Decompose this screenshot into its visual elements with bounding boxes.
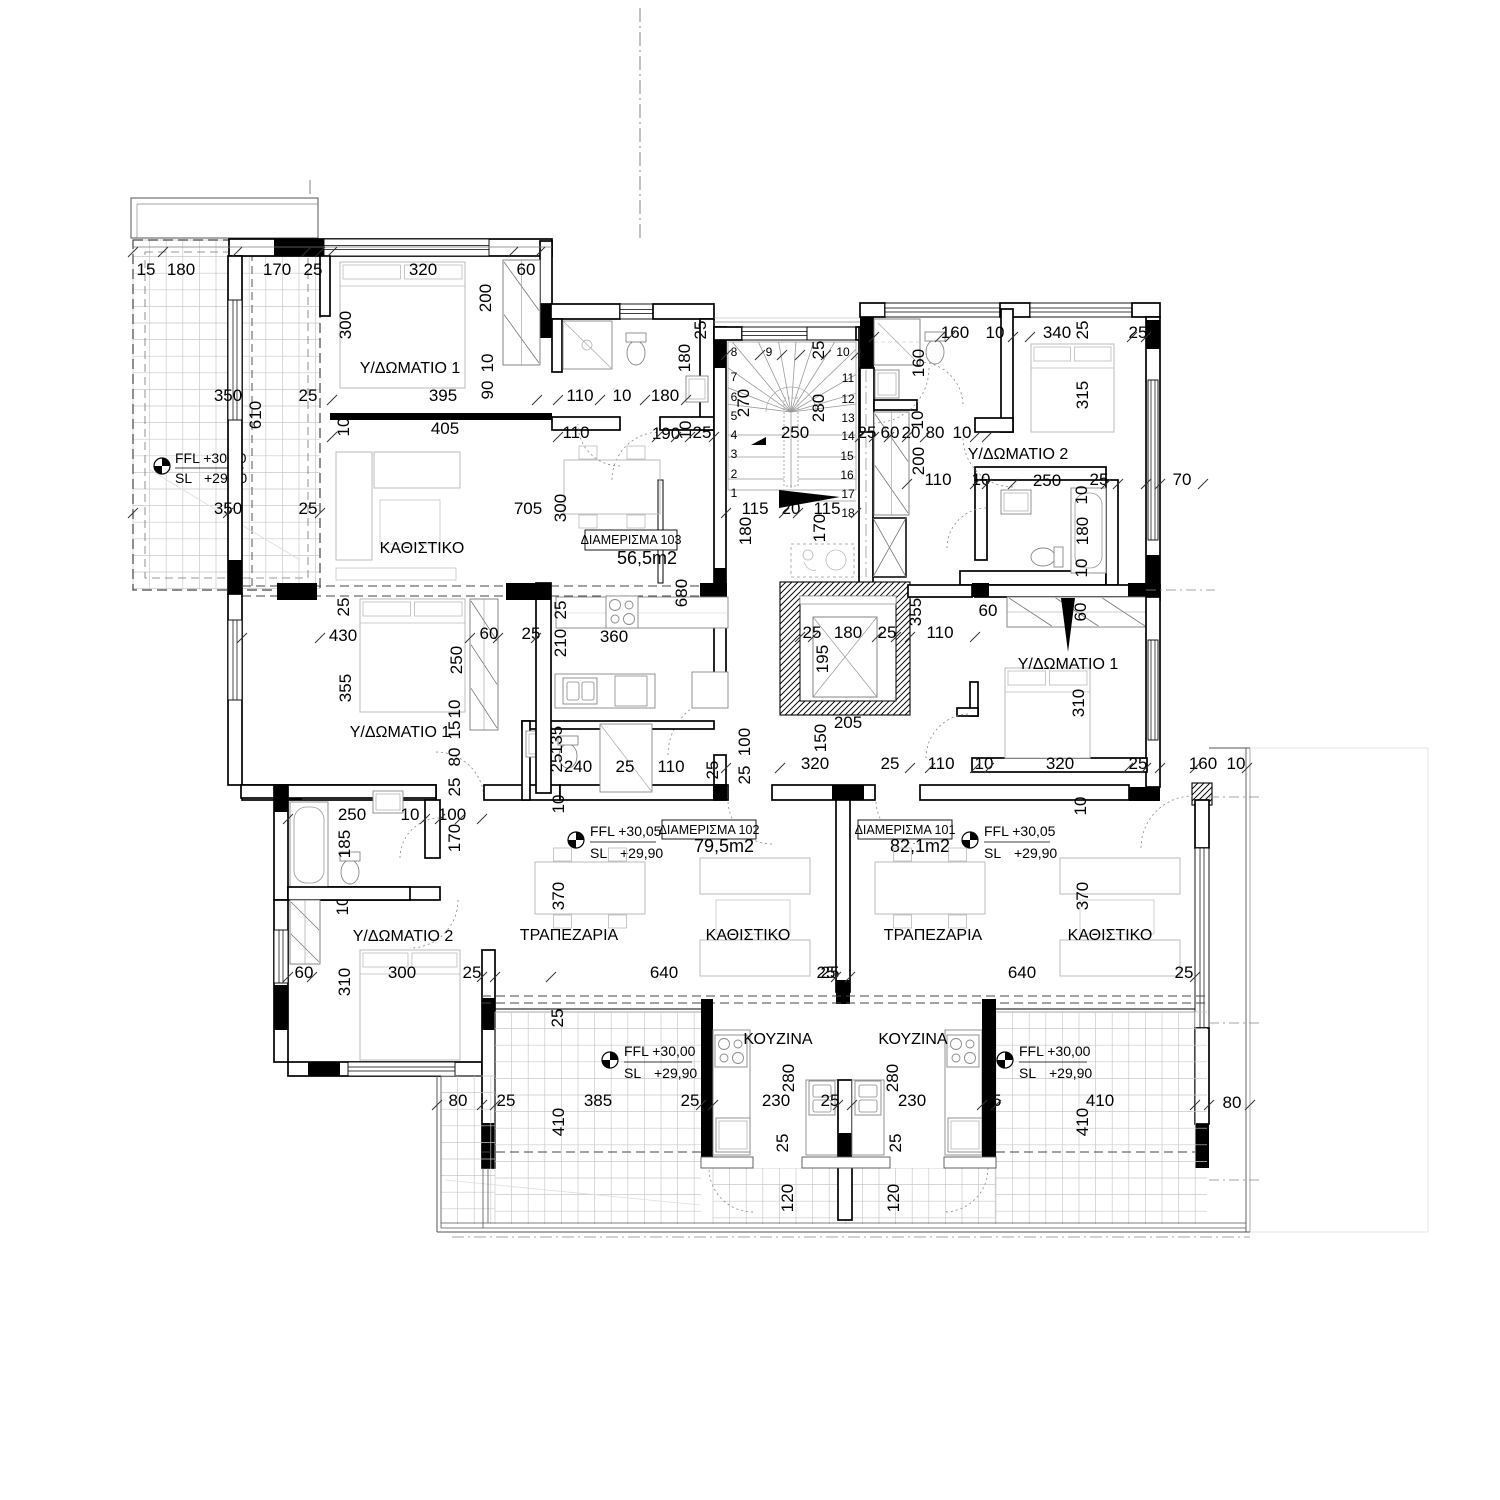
svg-text:100: 100 xyxy=(438,805,466,824)
svg-text:25: 25 xyxy=(681,1091,700,1110)
svg-text:110: 110 xyxy=(926,623,953,642)
svg-text:150: 150 xyxy=(811,724,830,752)
svg-text:610: 610 xyxy=(246,401,265,429)
svg-text:300: 300 xyxy=(388,963,416,982)
svg-text:60: 60 xyxy=(881,423,900,442)
svg-text:25: 25 xyxy=(983,1091,1002,1110)
svg-text:110: 110 xyxy=(566,386,593,405)
svg-text:ΔΙΑΜΕΡΙΣΜΑ 103: ΔΙΑΜΕΡΙΣΜΑ 103 xyxy=(581,533,682,547)
svg-text:25: 25 xyxy=(1175,963,1194,982)
svg-text:2: 2 xyxy=(731,467,738,481)
svg-text:10: 10 xyxy=(401,805,420,824)
svg-text:160: 160 xyxy=(909,349,928,377)
svg-text:Υ/ΔΩΜΑΤΙΟ 1: Υ/ΔΩΜΑΤΙΟ 1 xyxy=(1018,656,1119,673)
svg-text:15: 15 xyxy=(840,449,854,463)
svg-text:280: 280 xyxy=(809,394,828,422)
svg-text:+29,90: +29,90 xyxy=(1014,845,1057,861)
svg-text:120: 120 xyxy=(778,1184,797,1212)
svg-text:395: 395 xyxy=(429,386,457,405)
svg-text:170: 170 xyxy=(810,514,829,542)
svg-text:350: 350 xyxy=(214,386,242,405)
svg-text:ΚΑΘΙΣΤΙΚΟ: ΚΑΘΙΣΤΙΚΟ xyxy=(380,540,465,557)
svg-text:280: 280 xyxy=(779,1064,798,1092)
svg-text:ΚΑΘΙΣΤΙΚΟ: ΚΑΘΙΣΤΙΚΟ xyxy=(706,927,791,944)
svg-text:10: 10 xyxy=(975,754,994,773)
svg-text:60: 60 xyxy=(295,963,314,982)
svg-text:405: 405 xyxy=(431,419,459,438)
svg-text:385: 385 xyxy=(584,1091,612,1110)
svg-text:25: 25 xyxy=(616,757,635,776)
svg-text:10: 10 xyxy=(908,411,927,430)
svg-text:25: 25 xyxy=(803,623,822,642)
svg-text:ΚΑΘΙΣΤΙΚΟ: ΚΑΘΙΣΤΙΚΟ xyxy=(1068,927,1153,944)
svg-text:100: 100 xyxy=(735,728,754,756)
svg-text:300: 300 xyxy=(551,494,570,522)
svg-text:FFL +30,05: FFL +30,05 xyxy=(590,823,662,839)
svg-text:Υ/ΔΩΜΑΤΙΟ 2: Υ/ΔΩΜΑΤΙΟ 2 xyxy=(968,446,1069,463)
svg-text:82,1m2: 82,1m2 xyxy=(890,836,950,856)
svg-text:FFL +30,05: FFL +30,05 xyxy=(984,823,1056,839)
svg-text:7: 7 xyxy=(731,370,738,384)
svg-text:13: 13 xyxy=(841,411,855,425)
svg-text:+29,90: +29,90 xyxy=(1049,1065,1092,1081)
svg-text:10: 10 xyxy=(953,423,972,442)
svg-text:ΚΟΥΖΙΝΑ: ΚΟΥΖΙΝΑ xyxy=(743,1031,813,1048)
svg-text:25: 25 xyxy=(821,963,840,982)
svg-text:170: 170 xyxy=(445,824,464,852)
svg-text:1: 1 xyxy=(731,486,738,500)
svg-text:18: 18 xyxy=(841,506,855,520)
svg-text:10: 10 xyxy=(972,470,991,489)
svg-text:250: 250 xyxy=(447,646,466,674)
svg-text:410: 410 xyxy=(1073,1108,1092,1136)
svg-text:115: 115 xyxy=(741,499,768,518)
svg-text:ΤΡΑΠΕΖΑΡΙΑ: ΤΡΑΠΕΖΑΡΙΑ xyxy=(520,927,619,944)
svg-text:ΔΙΑΜΕΡΙΣΜΑ 101: ΔΙΑΜΕΡΙΣΜΑ 101 xyxy=(855,823,956,837)
svg-text:280: 280 xyxy=(883,1064,902,1092)
svg-text:195: 195 xyxy=(813,645,832,673)
svg-text:25: 25 xyxy=(551,601,570,620)
svg-text:270: 270 xyxy=(734,389,753,417)
svg-text:205: 205 xyxy=(834,713,862,732)
svg-text:25: 25 xyxy=(299,386,318,405)
svg-text:10: 10 xyxy=(1072,559,1091,578)
svg-text:SL: SL xyxy=(590,845,607,861)
svg-text:315: 315 xyxy=(1073,381,1092,409)
svg-text:25: 25 xyxy=(821,1091,840,1110)
svg-text:Υ/ΔΩΜΑΤΙΟ 1: Υ/ΔΩΜΑΤΙΟ 1 xyxy=(360,360,461,377)
svg-text:210: 210 xyxy=(551,629,570,657)
svg-text:11: 11 xyxy=(842,371,855,385)
svg-text:110: 110 xyxy=(927,754,954,773)
svg-text:10: 10 xyxy=(1071,797,1090,816)
svg-text:310: 310 xyxy=(1069,689,1088,717)
svg-text:60: 60 xyxy=(979,601,998,620)
svg-text:25: 25 xyxy=(693,423,712,442)
svg-text:10: 10 xyxy=(1072,486,1091,505)
svg-text:8: 8 xyxy=(731,345,738,359)
svg-text:60: 60 xyxy=(1071,603,1090,622)
svg-text:10: 10 xyxy=(549,795,568,814)
svg-text:25: 25 xyxy=(334,598,353,617)
svg-text:170: 170 xyxy=(263,260,291,279)
svg-text:25: 25 xyxy=(304,260,323,279)
svg-text:25: 25 xyxy=(299,499,318,518)
svg-text:350: 350 xyxy=(214,499,242,518)
svg-text:370: 370 xyxy=(549,882,568,910)
svg-text:110: 110 xyxy=(657,757,684,776)
svg-text:10: 10 xyxy=(986,323,1005,342)
svg-text:16: 16 xyxy=(840,468,854,482)
svg-text:25: 25 xyxy=(735,766,754,785)
svg-text:25: 25 xyxy=(691,321,710,340)
svg-text:9: 9 xyxy=(766,345,773,359)
svg-text:3: 3 xyxy=(731,447,738,461)
svg-text:230: 230 xyxy=(762,1091,790,1110)
svg-text:FFL +30,00: FFL +30,00 xyxy=(624,1043,696,1059)
svg-text:705: 705 xyxy=(514,499,542,518)
svg-text:Υ/ΔΩΜΑΤΙΟ 1: Υ/ΔΩΜΑΤΙΟ 1 xyxy=(350,724,451,741)
svg-text:680: 680 xyxy=(672,579,691,607)
svg-text:17: 17 xyxy=(841,487,855,501)
svg-text:14: 14 xyxy=(841,429,855,443)
svg-text:180: 180 xyxy=(167,260,195,279)
svg-text:SL: SL xyxy=(175,470,192,486)
svg-text:70: 70 xyxy=(1173,470,1192,489)
svg-text:79,5m2: 79,5m2 xyxy=(694,836,754,856)
svg-text:370: 370 xyxy=(1073,882,1092,910)
svg-text:120: 120 xyxy=(884,1184,903,1212)
svg-text:185: 185 xyxy=(335,830,354,858)
svg-text:+29,90: +29,90 xyxy=(654,1065,697,1081)
svg-text:320: 320 xyxy=(801,754,829,773)
svg-text:110: 110 xyxy=(924,470,951,489)
svg-text:10: 10 xyxy=(836,345,850,359)
svg-text:250: 250 xyxy=(781,423,809,442)
svg-text:230: 230 xyxy=(898,1091,926,1110)
svg-text:200: 200 xyxy=(476,284,495,312)
svg-text:360: 360 xyxy=(600,627,628,646)
svg-text:320: 320 xyxy=(1046,754,1074,773)
svg-text:SL: SL xyxy=(984,845,1001,861)
svg-text:80: 80 xyxy=(445,748,464,767)
svg-text:250: 250 xyxy=(1033,471,1061,490)
svg-text:Υ/ΔΩΜΑΤΙΟ 2: Υ/ΔΩΜΑΤΙΟ 2 xyxy=(353,928,454,945)
svg-text:FFL +30,00: FFL +30,00 xyxy=(1019,1043,1091,1059)
svg-text:56,5m2: 56,5m2 xyxy=(617,548,677,568)
svg-text:10: 10 xyxy=(1227,754,1246,773)
svg-text:25: 25 xyxy=(463,963,482,982)
svg-text:10: 10 xyxy=(613,386,632,405)
svg-text:90: 90 xyxy=(478,381,497,400)
svg-text:180: 180 xyxy=(651,386,679,405)
svg-text:410: 410 xyxy=(1086,1091,1114,1110)
svg-text:ΚΟΥΖΙΝΑ: ΚΟΥΖΙΝΑ xyxy=(878,1031,948,1048)
svg-text:25: 25 xyxy=(445,778,464,797)
svg-text:10: 10 xyxy=(478,354,497,373)
svg-text:25: 25 xyxy=(881,754,900,773)
svg-text:340: 340 xyxy=(1043,323,1071,342)
svg-text:180: 180 xyxy=(1073,517,1092,545)
svg-text:25: 25 xyxy=(522,624,541,643)
svg-text:12: 12 xyxy=(841,392,855,406)
svg-text:430: 430 xyxy=(329,626,357,645)
svg-text:60: 60 xyxy=(517,260,536,279)
svg-text:SL: SL xyxy=(1019,1065,1036,1081)
svg-text:80: 80 xyxy=(1223,1093,1242,1112)
svg-text:310: 310 xyxy=(335,968,354,996)
svg-text:320: 320 xyxy=(409,260,437,279)
svg-text:ΤΡΑΠΕΖΑΡΙΑ: ΤΡΑΠΕΖΑΡΙΑ xyxy=(884,927,983,944)
svg-text:355: 355 xyxy=(906,598,925,626)
svg-text:15: 15 xyxy=(137,260,156,279)
svg-text:25: 25 xyxy=(1073,321,1092,340)
svg-text:ΔΙΑΜΕΡΙΣΜΑ 102: ΔΙΑΜΕΡΙΣΜΑ 102 xyxy=(659,823,760,837)
svg-text:640: 640 xyxy=(650,963,678,982)
svg-text:180: 180 xyxy=(675,344,694,372)
svg-text:20: 20 xyxy=(782,499,801,518)
svg-text:355: 355 xyxy=(336,674,355,702)
svg-text:SL: SL xyxy=(624,1065,641,1081)
svg-text:410: 410 xyxy=(549,1108,568,1136)
svg-text:80: 80 xyxy=(926,423,945,442)
svg-text:4: 4 xyxy=(731,428,738,442)
svg-text:180: 180 xyxy=(834,623,862,642)
svg-text:25: 25 xyxy=(703,761,722,780)
svg-text:25: 25 xyxy=(858,423,877,442)
svg-text:300: 300 xyxy=(336,311,355,339)
svg-text:250: 250 xyxy=(338,805,366,824)
svg-text:25: 25 xyxy=(886,1134,905,1153)
svg-text:80: 80 xyxy=(449,1091,468,1110)
svg-text:180: 180 xyxy=(736,517,755,545)
svg-text:25: 25 xyxy=(1090,470,1109,489)
svg-text:25: 25 xyxy=(1129,754,1148,773)
svg-text:240: 240 xyxy=(564,757,592,776)
svg-text:640: 640 xyxy=(1008,963,1036,982)
svg-text:25: 25 xyxy=(548,1009,567,1028)
svg-text:10: 10 xyxy=(334,418,353,437)
svg-text:25: 25 xyxy=(773,1134,792,1153)
svg-text:110: 110 xyxy=(562,423,589,442)
svg-text:10: 10 xyxy=(445,700,464,719)
